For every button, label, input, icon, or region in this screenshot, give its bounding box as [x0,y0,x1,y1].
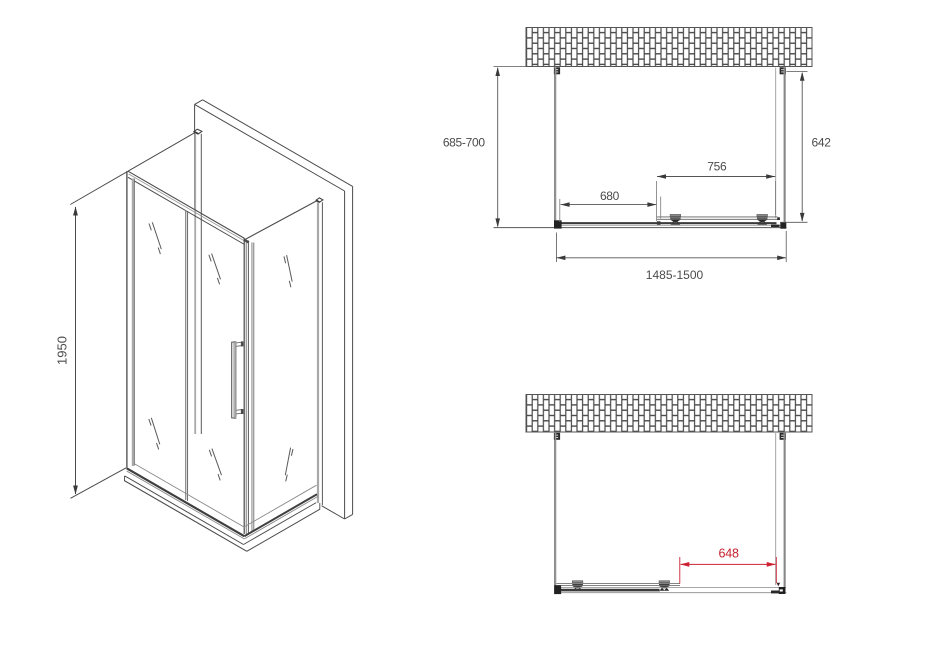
svg-text:1950: 1950 [55,336,70,365]
svg-text:680: 680 [600,189,620,203]
svg-text:648: 648 [718,547,739,561]
svg-text:642: 642 [812,136,832,150]
svg-text:1485-1500: 1485-1500 [646,268,704,282]
svg-text:685-700: 685-700 [443,136,486,150]
svg-text:756: 756 [707,159,727,173]
